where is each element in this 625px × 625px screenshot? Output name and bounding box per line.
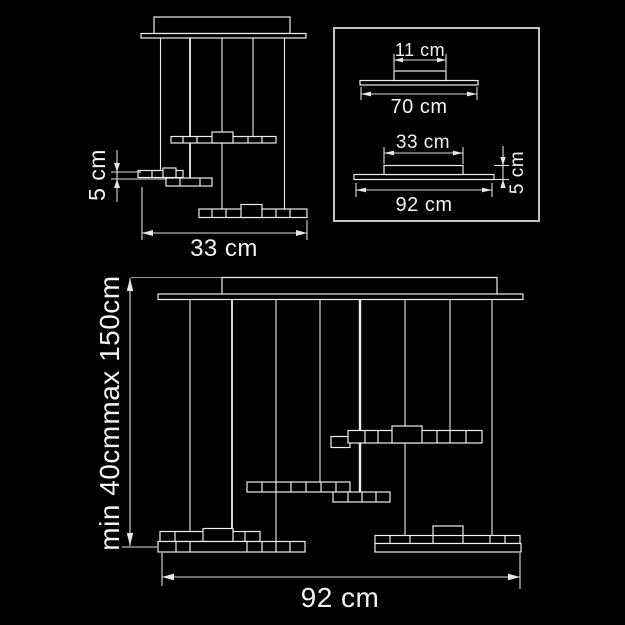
pendant-lamp-dimension-diagram: 5 cm 33 cm 11 cm [0,0,625,625]
inset-variant-70: 11 cm 70 cm [360,40,478,118]
inset-variant-92: 33 cm 92 cm 5 cm [354,132,528,216]
large-min-drop-label: min 40cm [94,425,125,550]
small-front-view: 5 cm 33 cm [84,17,307,262]
small-upper-bar [171,132,276,143]
small-bottom-bar [199,205,307,218]
small-width-dimension: 33 cm [142,187,307,262]
large-front-view: max 150cm min 40cm 92 cm [94,275,523,613]
large-canopy-box [222,278,497,295]
large-ceiling-plate [158,294,523,300]
inset92-base-width-label: 92 cm [396,194,453,216]
small-width-label: 33 cm [190,235,258,262]
large-suspension-rods [190,300,492,542]
large-bottomright-bar [375,526,521,552]
small-canopy-box [154,17,290,34]
large-max-drop-label: max 150cm [94,275,125,424]
large-width-label: 92 cm [301,582,380,613]
inset70-canopy-width-label: 11 cm [395,40,445,60]
large-drop-dimension: max 150cm min 40cm [94,275,157,550]
small-step-height-label: 5 cm [84,149,110,201]
inset-side-views: 11 cm 70 cm 33 cm 92 cm [334,28,539,221]
large-middle-stepped-bars [247,482,390,502]
small-ceiling-plate [141,34,306,39]
large-width-dimension: 92 cm [162,553,520,613]
large-bottomleft-bar [158,529,305,553]
inset92-canopy [384,166,463,175]
inset92-canopy-width-label: 33 cm [396,132,450,153]
inset70-base-width-label: 70 cm [391,96,448,118]
inset92-base-plate [354,175,494,180]
small-left-stepped-bars [138,168,212,186]
large-midright-bar [331,426,482,448]
inset92-height-label: 5 cm [507,151,528,194]
inset70-canopy [394,71,446,81]
diagram-page: 5 cm 33 cm 11 cm [0,0,625,625]
inset70-base-plate [360,81,478,86]
